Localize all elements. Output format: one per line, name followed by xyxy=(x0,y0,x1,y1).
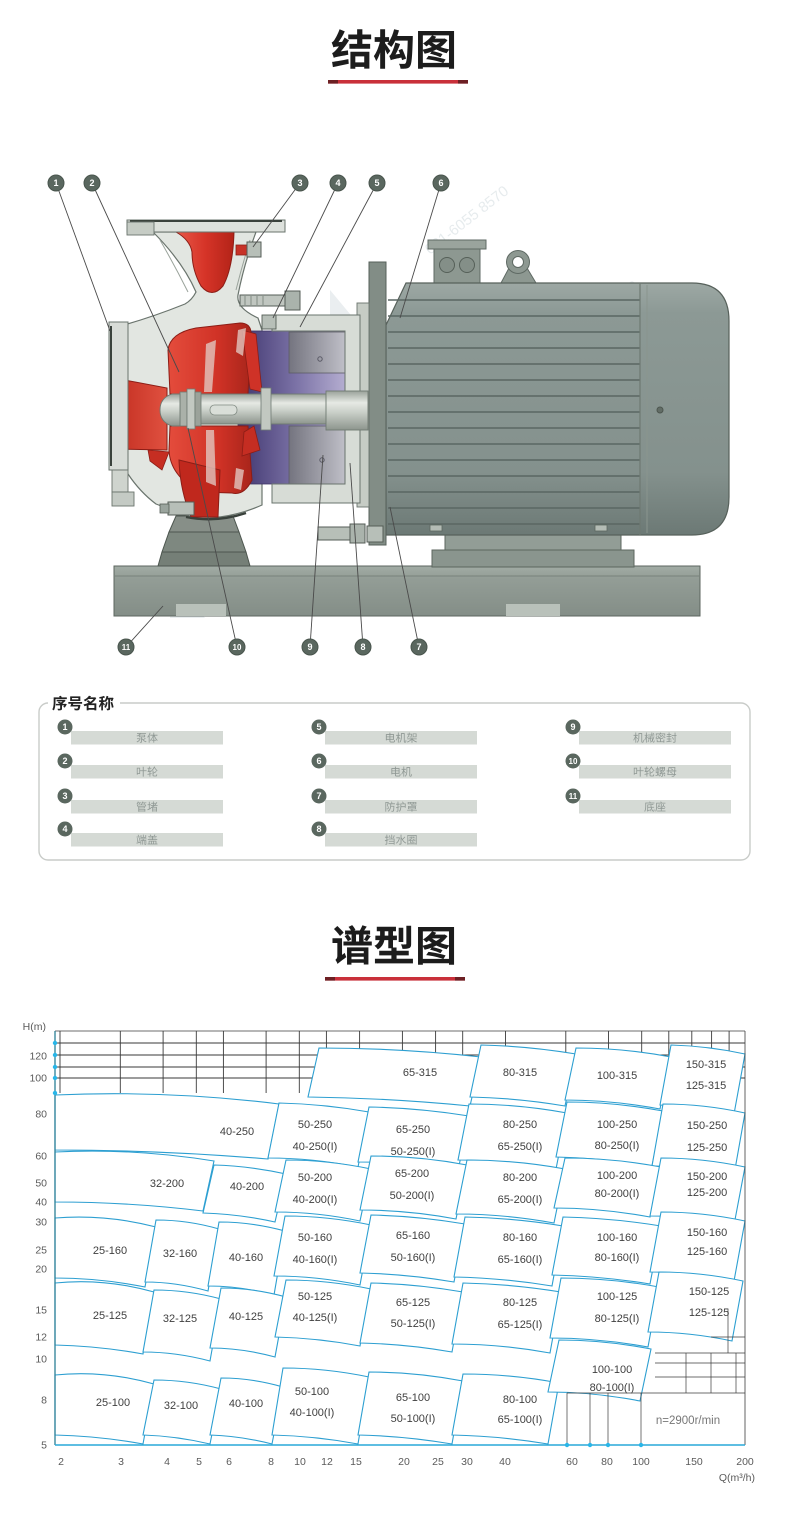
svg-text:H(m): H(m) xyxy=(23,1021,46,1033)
svg-text:80-315: 80-315 xyxy=(503,1067,537,1079)
svg-text:40-100(I): 40-100(I) xyxy=(290,1407,335,1419)
svg-text:50-250: 50-250 xyxy=(298,1119,332,1131)
svg-text:80: 80 xyxy=(601,1456,613,1468)
svg-text:80-125(I): 80-125(I) xyxy=(595,1313,640,1325)
svg-text:4: 4 xyxy=(62,824,67,834)
svg-text:65-160: 65-160 xyxy=(396,1230,430,1242)
svg-text:25-125: 25-125 xyxy=(93,1310,127,1322)
svg-text:50-200: 50-200 xyxy=(298,1172,332,1184)
svg-text:100-100: 100-100 xyxy=(592,1364,632,1376)
svg-text:32-200: 32-200 xyxy=(150,1178,184,1190)
svg-text:5: 5 xyxy=(196,1456,202,1468)
svg-text:80-100: 80-100 xyxy=(503,1394,537,1406)
svg-text:5: 5 xyxy=(316,722,321,732)
svg-text:4: 4 xyxy=(335,178,340,188)
svg-text:3: 3 xyxy=(118,1456,124,1468)
svg-text:40: 40 xyxy=(35,1197,47,1209)
svg-text:40-160: 40-160 xyxy=(229,1252,263,1264)
svg-text:50: 50 xyxy=(35,1178,47,1190)
svg-text:15: 15 xyxy=(35,1305,47,1317)
svg-text:40-250(I): 40-250(I) xyxy=(293,1141,338,1153)
svg-text:2: 2 xyxy=(58,1456,64,1468)
svg-text:n=2900r/min: n=2900r/min xyxy=(656,1415,720,1427)
svg-text:25-100: 25-100 xyxy=(96,1397,130,1409)
svg-text:65-125(I): 65-125(I) xyxy=(498,1319,543,1331)
svg-text:8: 8 xyxy=(316,824,321,834)
svg-text:150-125: 150-125 xyxy=(689,1286,729,1298)
svg-text:150-315: 150-315 xyxy=(686,1059,726,1071)
svg-text:40-100: 40-100 xyxy=(229,1398,263,1410)
svg-text:80-250(I): 80-250(I) xyxy=(595,1140,640,1152)
svg-text:12: 12 xyxy=(35,1332,47,1344)
svg-text:100: 100 xyxy=(29,1073,47,1085)
svg-text:100-125: 100-125 xyxy=(597,1291,637,1303)
svg-text:6: 6 xyxy=(226,1456,232,1468)
svg-text:120: 120 xyxy=(29,1051,47,1063)
svg-text:125-250: 125-250 xyxy=(687,1142,727,1154)
svg-text:3: 3 xyxy=(62,791,67,801)
svg-text:50-100: 50-100 xyxy=(295,1386,329,1398)
svg-text:100-315: 100-315 xyxy=(597,1070,637,1082)
svg-text:40-250: 40-250 xyxy=(220,1126,254,1138)
svg-text:25-160: 25-160 xyxy=(93,1245,127,1257)
svg-text:65-200: 65-200 xyxy=(395,1168,429,1180)
svg-text:25: 25 xyxy=(432,1456,444,1468)
svg-text:125-125: 125-125 xyxy=(689,1307,729,1319)
svg-text:7: 7 xyxy=(316,791,321,801)
svg-text:65-250: 65-250 xyxy=(396,1124,430,1136)
svg-text:65-100(I): 65-100(I) xyxy=(498,1414,543,1426)
svg-text:5: 5 xyxy=(374,178,379,188)
svg-text:40-200: 40-200 xyxy=(230,1181,264,1193)
svg-text:60: 60 xyxy=(35,1151,47,1163)
svg-text:4: 4 xyxy=(164,1456,170,1468)
svg-text:80-125: 80-125 xyxy=(503,1297,537,1309)
svg-text:65-315: 65-315 xyxy=(403,1067,437,1079)
svg-text:Q(m³/h): Q(m³/h) xyxy=(719,1472,755,1484)
svg-text:30: 30 xyxy=(35,1217,47,1229)
svg-text:11: 11 xyxy=(122,643,131,652)
svg-text:100-200: 100-200 xyxy=(597,1170,637,1182)
svg-text:80-100(I): 80-100(I) xyxy=(590,1382,635,1394)
svg-text:32-100: 32-100 xyxy=(164,1400,198,1412)
svg-text:11: 11 xyxy=(569,792,578,801)
svg-text:50-125(I): 50-125(I) xyxy=(391,1318,436,1330)
svg-text:7: 7 xyxy=(416,642,421,652)
svg-text:32-160: 32-160 xyxy=(163,1248,197,1260)
svg-text:100: 100 xyxy=(632,1456,650,1468)
svg-text:50-200(I): 50-200(I) xyxy=(390,1190,435,1202)
svg-text:6: 6 xyxy=(438,178,443,188)
svg-text:50-160: 50-160 xyxy=(298,1232,332,1244)
svg-text:80: 80 xyxy=(35,1109,47,1121)
svg-text:100-250: 100-250 xyxy=(597,1119,637,1131)
svg-text:80-250: 80-250 xyxy=(503,1119,537,1131)
svg-text:150-250: 150-250 xyxy=(687,1120,727,1132)
svg-text:40-200(I): 40-200(I) xyxy=(293,1194,338,1206)
svg-text:8: 8 xyxy=(268,1456,274,1468)
svg-text:50-100(I): 50-100(I) xyxy=(391,1413,436,1425)
svg-text:8: 8 xyxy=(360,642,365,652)
svg-text:9: 9 xyxy=(307,642,312,652)
svg-text:2: 2 xyxy=(62,756,67,766)
svg-text:65-125: 65-125 xyxy=(396,1297,430,1309)
svg-text:80-160: 80-160 xyxy=(503,1232,537,1244)
svg-text:200: 200 xyxy=(736,1456,754,1468)
svg-text:50-250(I): 50-250(I) xyxy=(391,1146,436,1158)
svg-text:10: 10 xyxy=(294,1456,306,1468)
svg-text:150-200: 150-200 xyxy=(687,1171,727,1183)
svg-text:30: 30 xyxy=(461,1456,473,1468)
svg-text:150-160: 150-160 xyxy=(687,1227,727,1239)
svg-text:150: 150 xyxy=(685,1456,703,1468)
svg-text:65-250(I): 65-250(I) xyxy=(498,1141,543,1153)
svg-text:80-160(I): 80-160(I) xyxy=(595,1252,640,1264)
svg-text:50-125: 50-125 xyxy=(298,1291,332,1303)
svg-text:8: 8 xyxy=(41,1395,47,1407)
svg-text:1: 1 xyxy=(62,722,67,732)
svg-text:40-125(I): 40-125(I) xyxy=(293,1312,338,1324)
svg-text:80-200(I): 80-200(I) xyxy=(595,1188,640,1200)
svg-text:25: 25 xyxy=(35,1245,47,1257)
svg-text:65-160(I): 65-160(I) xyxy=(498,1254,543,1266)
svg-text:60: 60 xyxy=(566,1456,578,1468)
svg-text:1: 1 xyxy=(53,178,58,188)
svg-text:125-160: 125-160 xyxy=(687,1246,727,1258)
svg-text:10: 10 xyxy=(233,643,242,652)
svg-text:100-160: 100-160 xyxy=(597,1232,637,1244)
svg-text:40-125: 40-125 xyxy=(229,1311,263,1323)
svg-text:20: 20 xyxy=(35,1264,47,1276)
svg-text:65-100: 65-100 xyxy=(396,1392,430,1404)
svg-text:40: 40 xyxy=(499,1456,511,1468)
svg-text:40-160(I): 40-160(I) xyxy=(293,1254,338,1266)
svg-text:125-200: 125-200 xyxy=(687,1187,727,1199)
svg-text:80-200: 80-200 xyxy=(503,1172,537,1184)
svg-text:125-315: 125-315 xyxy=(686,1080,726,1092)
svg-text:12: 12 xyxy=(321,1456,333,1468)
svg-text:15: 15 xyxy=(350,1456,362,1468)
svg-text:20: 20 xyxy=(398,1456,410,1468)
svg-text:50-160(I): 50-160(I) xyxy=(391,1252,436,1264)
svg-text:32-125: 32-125 xyxy=(163,1313,197,1325)
svg-text:10: 10 xyxy=(35,1354,47,1366)
svg-text:3: 3 xyxy=(297,178,302,188)
svg-text:6: 6 xyxy=(316,756,321,766)
svg-text:2: 2 xyxy=(89,178,94,188)
svg-text:65-200(I): 65-200(I) xyxy=(498,1194,543,1206)
svg-text:9: 9 xyxy=(570,722,575,732)
svg-text:10: 10 xyxy=(569,757,578,766)
svg-text:5: 5 xyxy=(41,1440,47,1452)
